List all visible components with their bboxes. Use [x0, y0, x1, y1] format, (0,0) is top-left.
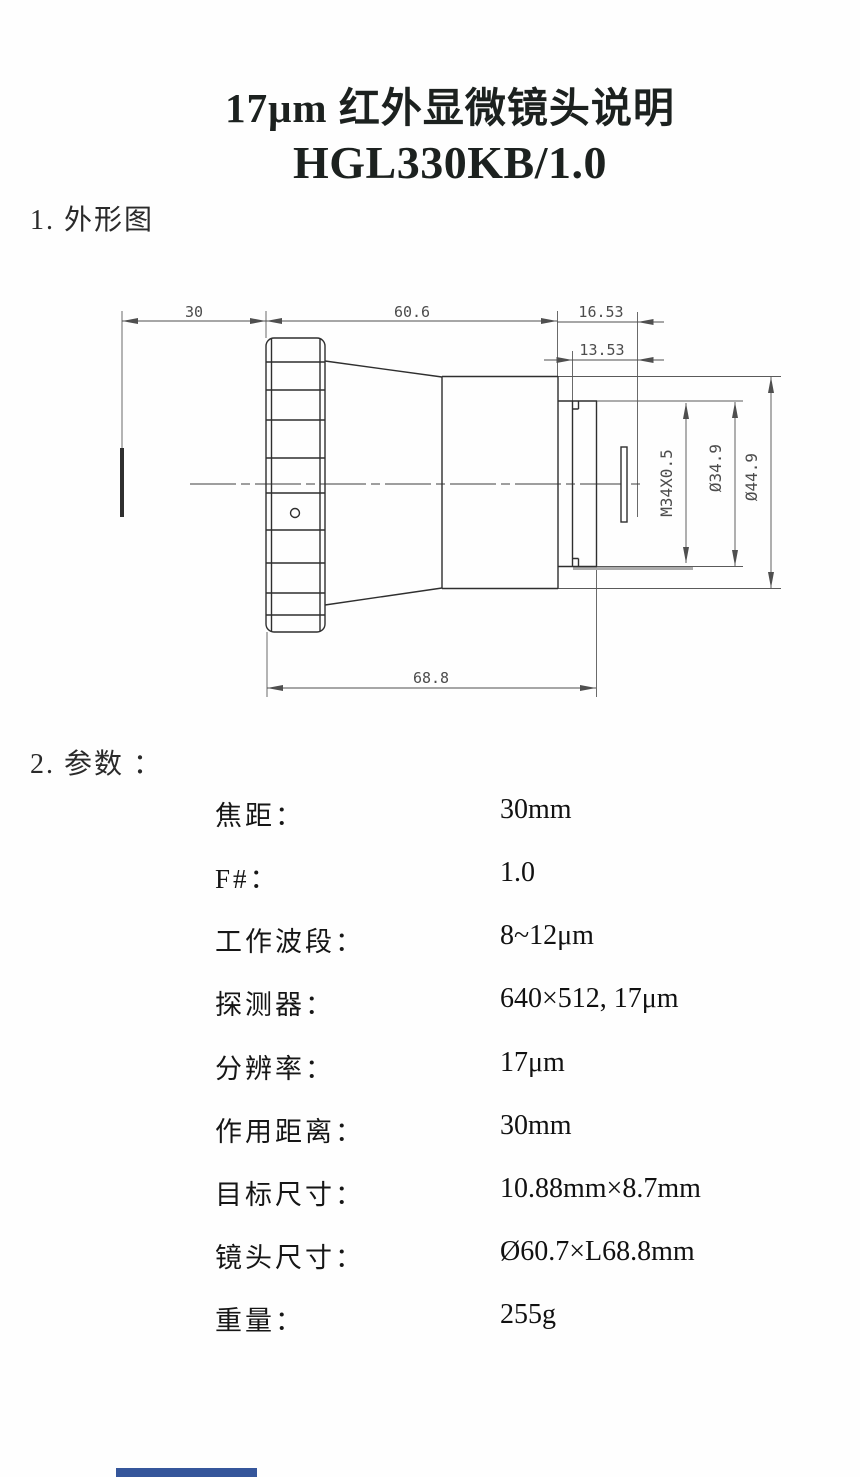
datasheet-page: 17μm 红外显微镜头说明 HGL330KB/1.0 1. 外形图 — [0, 0, 860, 1477]
param-label: 作用距离： — [215, 1110, 365, 1149]
dim-rear-length: 16.53 — [578, 303, 623, 321]
param-label: 工作波段： — [215, 920, 365, 959]
params-section-heading: 2. 参数 ： — [30, 742, 163, 782]
param-value: 30mm — [500, 794, 572, 826]
param-value: Ø60.7×L68.8mm — [500, 1236, 695, 1268]
param-label: 镜头尺寸： — [215, 1236, 365, 1275]
lens-outline-svg: 30 60.6 16.53 13.53 68.8 M34X0.5 Ø34.9 Ø… — [0, 280, 860, 720]
page-title: 17μm 红外显微镜头说明 — [40, 74, 860, 134]
dim-flange-length: 13.53 — [579, 341, 624, 359]
param-label: 焦距： — [215, 794, 305, 833]
param-value: 8~12μm — [500, 920, 594, 952]
param-row-working-distance: 作用距离： 30mm — [0, 1110, 860, 1152]
param-value: 255g — [500, 1299, 556, 1331]
dim-total-length: 68.8 — [413, 669, 449, 687]
cone-bottom-edge — [325, 588, 442, 605]
focus-ring — [266, 338, 325, 632]
focus-ring-index-dot — [291, 509, 300, 518]
param-row-fnumber: F#： 1.0 — [0, 857, 860, 899]
cone-top-edge — [325, 361, 442, 377]
outline-section-heading: 1. 外形图 — [30, 198, 154, 238]
param-row-waveband: 工作波段： 8~12μm — [0, 920, 860, 962]
param-label: 分辨率： — [215, 1047, 335, 1086]
param-label: 目标尺寸： — [215, 1173, 365, 1212]
param-row-target-size: 目标尺寸： 10.88mm×8.7mm — [0, 1173, 860, 1215]
param-label: 探测器： — [215, 983, 335, 1022]
lens-outline-drawing: 30 60.6 16.53 13.53 68.8 M34X0.5 Ø34.9 Ø… — [0, 280, 860, 720]
dim-thread-spec: M34X0.5 — [657, 449, 676, 516]
model-number: HGL330KB/1.0 — [40, 136, 860, 189]
param-value: 1.0 — [500, 857, 535, 889]
param-row-detector: 探测器： 640×512, 17μm — [0, 983, 860, 1025]
extension-lines — [122, 311, 781, 697]
param-value: 640×512, 17μm — [500, 983, 679, 1015]
dim-working-distance: 30 — [185, 303, 203, 321]
page-bottom-accent-bar — [116, 1468, 257, 1477]
param-row-lens-size: 镜头尺寸： Ø60.7×L68.8mm — [0, 1236, 860, 1278]
detector-window — [621, 447, 627, 522]
param-row-weight: 重量： 255g — [0, 1299, 860, 1341]
param-value: 30mm — [500, 1110, 572, 1142]
dim-mount-diameter: Ø34.9 — [706, 444, 725, 492]
param-row-focal-length: 焦距： 30mm — [0, 794, 860, 836]
param-value: 10.88mm×8.7mm — [500, 1173, 701, 1205]
param-label: 重量： — [215, 1299, 305, 1338]
param-row-resolution: 分辨率： 17μm — [0, 1047, 860, 1089]
param-label: F#： — [215, 857, 280, 896]
dim-body-diameter: Ø44.9 — [742, 453, 761, 501]
dimension-arrowheads — [122, 318, 774, 691]
param-value: 17μm — [500, 1047, 565, 1079]
dim-body-length: 60.6 — [394, 303, 430, 321]
